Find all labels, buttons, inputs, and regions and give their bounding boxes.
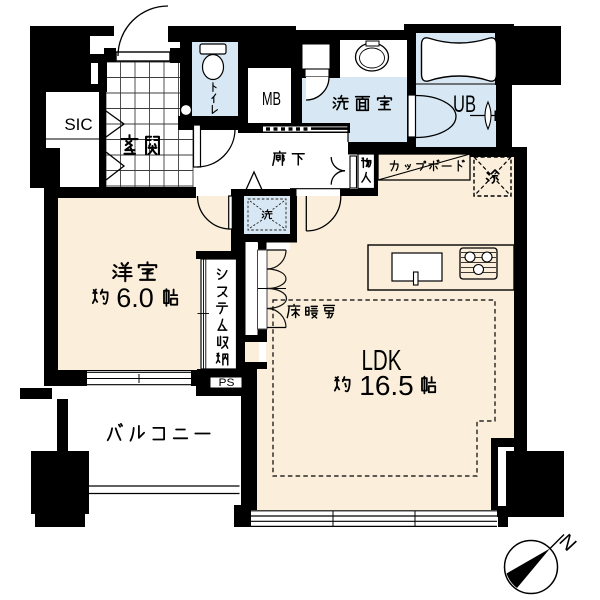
svg-text:SIC: SIC (64, 115, 92, 134)
svg-text:6.0: 6.0 (116, 283, 154, 313)
svg-text:PS: PS (219, 377, 235, 389)
svg-text:UB: UB (453, 91, 476, 118)
svg-text:N: N (555, 530, 581, 556)
svg-text:MB: MB (262, 89, 281, 109)
svg-text:16.5: 16.5 (359, 370, 414, 401)
